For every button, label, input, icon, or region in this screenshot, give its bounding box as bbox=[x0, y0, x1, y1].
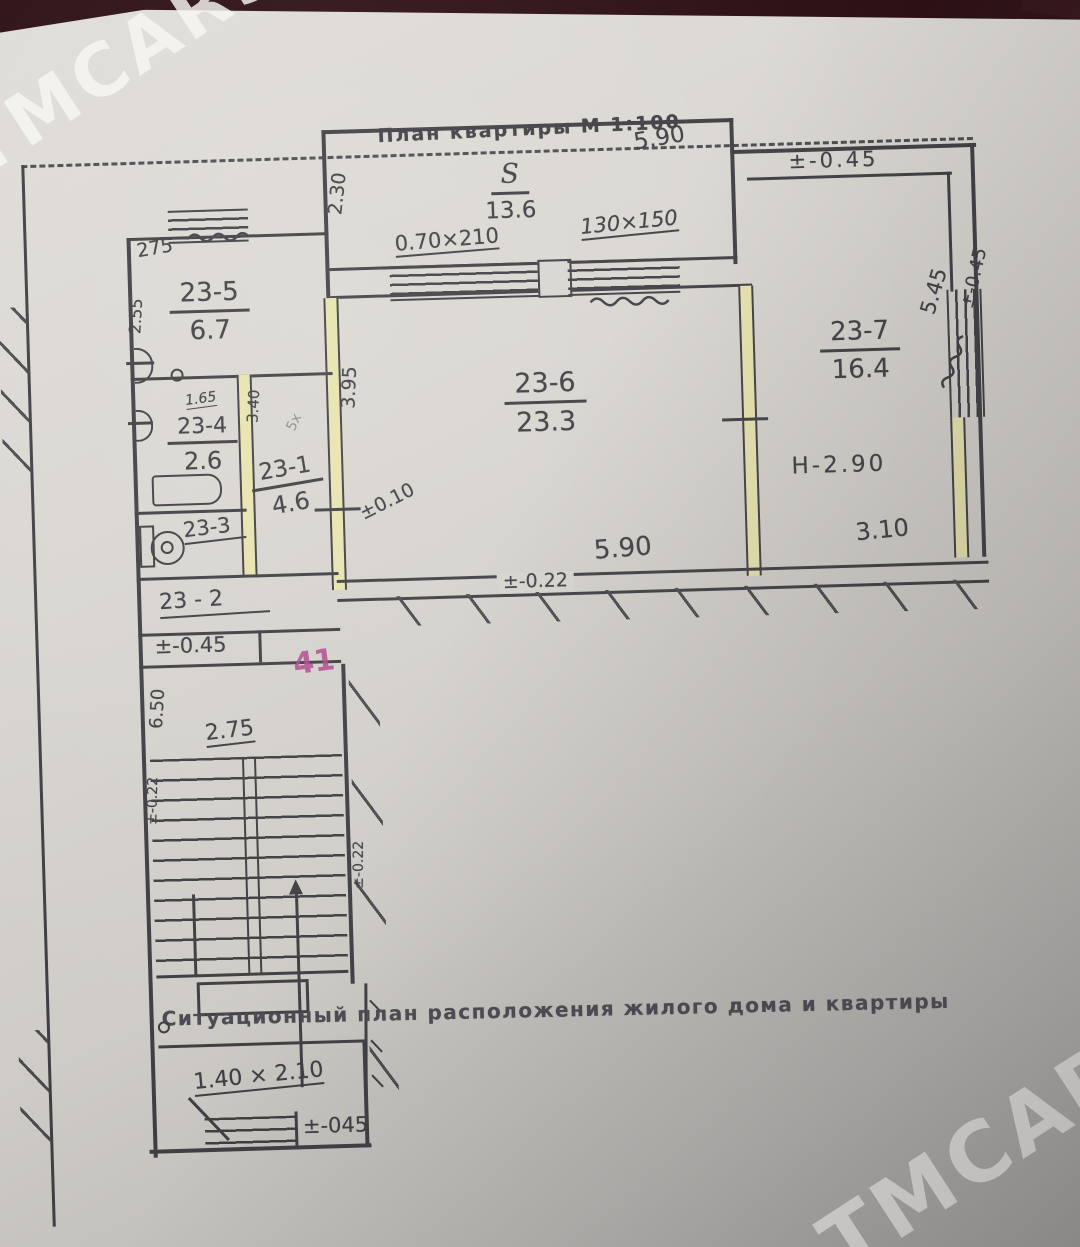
balcony-side-dim: 2.30 bbox=[326, 172, 350, 216]
right-wing-top-level: ±-0.45 bbox=[788, 148, 879, 173]
room-23-6-level-mark: ±0.10 bbox=[357, 480, 418, 524]
partition-236-237 bbox=[738, 286, 762, 576]
partition-231-236 bbox=[323, 298, 347, 590]
room-23-3-bottom-wall bbox=[137, 572, 339, 581]
stair-height-dim: 6.50 bbox=[148, 688, 169, 729]
porch-level: ±-045 bbox=[303, 1113, 369, 1137]
room-23-7-width-dim: 3.10 bbox=[854, 515, 910, 545]
room-23-1-label: 23-1 4.6 bbox=[239, 448, 336, 524]
right-wing-inner-top-line bbox=[747, 172, 952, 181]
room-23-6-depth-dim: 3.95 bbox=[339, 366, 361, 409]
room-23-6-width-dim: 5.90 bbox=[593, 533, 653, 565]
main-bottom-level: ±-0.22 bbox=[497, 571, 575, 593]
balcony-window-right-icon bbox=[567, 258, 680, 296]
porch-steps bbox=[205, 1115, 298, 1152]
red-mark: 41 bbox=[291, 644, 337, 681]
porch-top-wall bbox=[158, 1039, 366, 1048]
room-23-5-area: 6.7 bbox=[156, 311, 265, 347]
room-23-7-height-mark: Н-2.90 bbox=[791, 452, 886, 479]
plot-hatch-left-lower bbox=[18, 1030, 52, 1156]
bathtub-icon bbox=[152, 473, 223, 506]
balcony-right-wall bbox=[729, 118, 737, 264]
scanned-floor-plan-photo: План квартиры М 1:100 5.90 2.30 S 13.6 0… bbox=[0, 0, 1080, 1247]
right-side-dim: 5.45 bbox=[917, 266, 951, 317]
plot-hatch-left-upper bbox=[0, 307, 32, 488]
room-23-5-bottom-wall bbox=[131, 372, 333, 381]
room-23-6-area: 23.3 bbox=[486, 402, 607, 440]
stair-width-dim: 2.75 bbox=[204, 716, 256, 748]
room-23-3-label: 23-3 bbox=[182, 512, 246, 545]
room-23-4-top-dim: 1.65 bbox=[184, 390, 217, 410]
stair-hatch-right bbox=[348, 667, 387, 978]
balcony-window-left-icon bbox=[389, 262, 540, 301]
balcony-area-label: S 13.6 bbox=[454, 157, 566, 225]
room-23-2-label: 23 - 2 bbox=[159, 584, 271, 619]
stair-level-right: ±-0.22 bbox=[352, 841, 367, 889]
room-23-7-area: 16.4 bbox=[804, 350, 917, 386]
left-strip-level: ±-0.45 bbox=[154, 633, 227, 657]
level-strip-divider bbox=[258, 630, 261, 662]
room-23-7-label: 23-7 16.4 bbox=[803, 315, 917, 386]
balcony-area-value: 13.6 bbox=[455, 193, 566, 225]
floor-plan-drawing: План квартиры М 1:100 5.90 2.30 S 13.6 0… bbox=[0, 0, 1080, 1247]
room-23-7-number: 23-7 bbox=[820, 315, 900, 352]
right-inner-wall-lower bbox=[950, 417, 969, 557]
room-23-5-number: 23-5 bbox=[169, 277, 249, 314]
porch-dim: 1.40 × 2.10 bbox=[192, 1058, 324, 1097]
room-23-5-label: 23-5 6.7 bbox=[155, 276, 265, 347]
squiggle-mark bbox=[188, 230, 258, 244]
room-23-6-label: 23-6 23.3 bbox=[485, 366, 607, 440]
room-23-1-side-dim: 3.40 bbox=[245, 389, 263, 423]
balcony-door-dim: 0.70×210 bbox=[394, 224, 500, 258]
balcony-window-dim: 130×150 bbox=[579, 206, 679, 241]
right-side-level: ±-0.45 bbox=[959, 246, 992, 310]
sink-icon bbox=[136, 409, 154, 441]
door-hinge-icon bbox=[158, 1021, 170, 1033]
room-23-5-top-dim: 275 bbox=[135, 236, 174, 262]
up-arrow-icon bbox=[289, 879, 303, 894]
room-23-4-number: 23-4 bbox=[167, 413, 238, 445]
room-23-6-number: 23-6 bbox=[504, 367, 586, 405]
room-23-4-label: 23-4 2.6 bbox=[154, 413, 252, 477]
room-23-4-area: 2.6 bbox=[155, 443, 252, 477]
door-hinge-icon bbox=[170, 368, 183, 381]
pencil-note: 5х bbox=[284, 412, 305, 434]
porch-level-divider bbox=[294, 1111, 298, 1149]
balcony-area-symbol: S bbox=[490, 158, 530, 195]
squiggle-mark bbox=[590, 294, 670, 308]
room-23-5-side-dim: 2.55 bbox=[127, 298, 146, 335]
porch-hatch-right bbox=[370, 1044, 401, 1145]
